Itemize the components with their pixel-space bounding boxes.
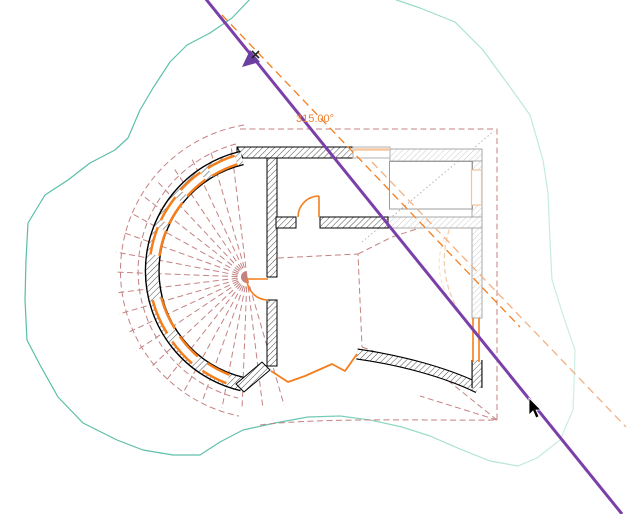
door-center[interactable] [247,279,268,300]
ghost-mid-wall [388,217,482,228]
roof-overlay-dashed[interactable] [114,125,497,425]
cad-drawing-area[interactable]: 315.00° [0,0,626,514]
curved-wall-hatch [152,158,242,384]
door-upper[interactable] [298,196,319,217]
curved-wall-windows[interactable] [155,160,236,379]
ghost-room-outline [390,162,473,210]
ghost-window-right [472,170,482,205]
ghost-top-wall [390,149,482,161]
interior-wall-mid-left[interactable] [276,217,296,228]
sketch-wavy-wall[interactable] [271,354,357,382]
highlighted-elements-group[interactable] [155,160,479,382]
plan-canvas[interactable]: 315.00° [0,0,626,514]
top-wall[interactable] [237,147,353,158]
rotate-ghost-ray-dashed [372,162,626,427]
topography-contour[interactable] [25,0,575,466]
interior-wall-mid-right[interactable] [320,217,388,228]
interior-wall-vertical-lower[interactable] [267,300,277,366]
right-wall-window[interactable] [473,318,479,362]
curved-wall-core [152,158,242,384]
angle-readout: 315.00° [296,113,334,125]
pointer-cursor-icon [529,398,541,418]
curved-wall-edge[interactable] [152,158,242,384]
